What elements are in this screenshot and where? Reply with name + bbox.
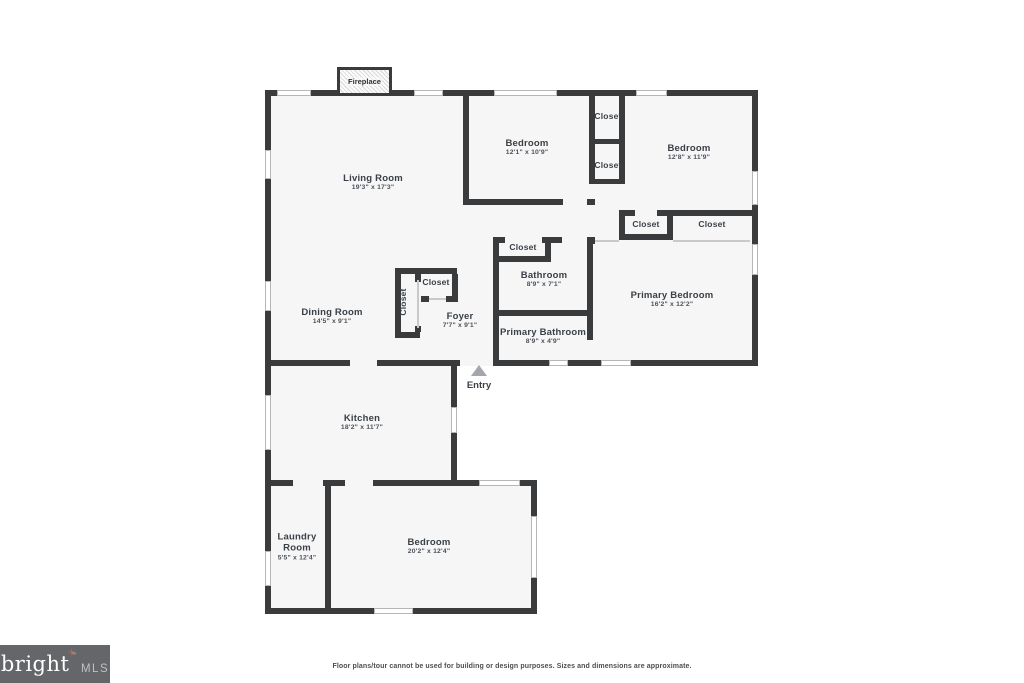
room-label-bathroom: Bathroom 8'9" x 7'1" [521, 270, 567, 290]
window [374, 608, 413, 614]
closet-label: Closet [632, 219, 659, 229]
room-label-living-room: Living Room 19'3" x 17'3" [343, 173, 403, 193]
room-label-bedroom-1: Bedroom 12'1" x 10'9" [505, 138, 548, 158]
door-opening [673, 240, 750, 242]
closet-label: Closet [698, 219, 725, 229]
disclaimer-text: Floor plans/tour cannot be used for buil… [0, 663, 1024, 670]
wall [587, 199, 595, 205]
wall [421, 296, 429, 302]
wall [395, 268, 457, 274]
entry-arrow-icon [471, 365, 487, 376]
entry-marker: Entry [456, 365, 502, 391]
room-label-kitchen: Kitchen 18'2" x 11'7" [341, 413, 383, 433]
door-opening [417, 280, 419, 328]
wall [499, 256, 551, 262]
logo-brand-text: bright+™ [1, 652, 77, 676]
room-label-primary-bedroom: Primary Bedroom 16'2" x 12'2" [631, 290, 714, 310]
wall [589, 139, 625, 144]
closet-label: Closet [594, 111, 621, 121]
door-opening [429, 298, 446, 300]
window [636, 90, 667, 96]
window [601, 360, 631, 366]
closet-label: Closet [422, 277, 449, 287]
wall [395, 332, 420, 338]
wall [499, 310, 587, 316]
wall [377, 360, 460, 366]
room-label-bedroom-2: Bedroom 12'8" x 11'9" [667, 143, 710, 163]
window [277, 90, 311, 96]
window [414, 90, 443, 96]
room-label-dining-room: Dining Room 14'5" x 9'1" [301, 307, 362, 327]
brightmls-logo: bright+™ MLS [0, 645, 110, 683]
wall [463, 199, 563, 205]
window [531, 516, 537, 578]
window [752, 171, 758, 205]
closet-label: Closet [594, 160, 621, 170]
door-opening [595, 240, 619, 242]
wall [265, 480, 293, 486]
room-label-laundry-room: Laundry Room 5'5" x 12'4" [268, 532, 326, 563]
logo-accent-icon: + [68, 648, 76, 658]
window [549, 360, 568, 366]
wall [493, 237, 505, 243]
room-label-foyer: Foyer 7'7" x 9'1" [443, 311, 478, 331]
wall [619, 234, 673, 240]
closet-label: Closet [509, 242, 536, 252]
fireplace-label: Fireplace [347, 77, 382, 86]
logo-suffix-text: MLS [81, 663, 109, 675]
wall [463, 96, 469, 205]
wall [752, 96, 758, 366]
wall [265, 360, 350, 366]
window [494, 90, 557, 96]
window [265, 281, 271, 311]
window [479, 480, 520, 486]
wall [589, 179, 625, 184]
window [451, 407, 457, 433]
wall [587, 243, 593, 340]
floor-plan-page: Fireplace Living Room 19'3" x 17'3" Bedr… [0, 0, 1024, 683]
wall [373, 480, 451, 486]
window [752, 244, 758, 275]
fireplace: Fireplace [337, 67, 392, 96]
wall [446, 296, 458, 302]
window [265, 150, 271, 179]
entry-label: Entry [456, 380, 502, 391]
room-label-bedroom-3: Bedroom 20'2" x 12'4" [407, 537, 450, 557]
room-label-primary-bathroom: Primary Bathroom 8'9" x 4'9" [500, 327, 586, 347]
window [265, 395, 271, 450]
closet-label: Closet [398, 288, 408, 315]
